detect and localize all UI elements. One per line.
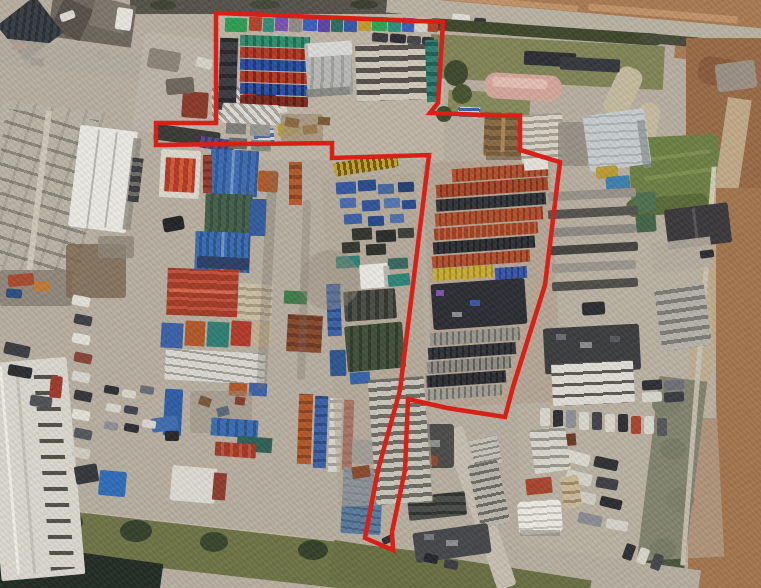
car-c4: [105, 403, 121, 413]
top-container-15: [428, 19, 438, 32]
car-r8: [631, 416, 641, 434]
red-machine: [8, 273, 35, 287]
car-e2: [642, 391, 662, 402]
verge-tree-4: [298, 540, 328, 560]
blue-ctr-4: [398, 182, 415, 193]
scrap-road-speck-1: [424, 534, 434, 540]
car-e1: [642, 379, 662, 390]
top-container-4: [275, 17, 288, 31]
red-column: [203, 155, 212, 193]
dark-box-2: [376, 229, 397, 242]
top-strip-tree-2: [250, 0, 280, 9]
mixed-row-orange: [184, 320, 205, 346]
blue-ctr-2: [358, 180, 377, 192]
pallet-racks-right: [355, 43, 433, 102]
aerial-photo-industrial-estate: [0, 0, 761, 588]
van-row-7: [71, 408, 91, 422]
dark-mass-purple: [436, 290, 444, 296]
colored-col-blue: [313, 396, 329, 468]
van-row-3: [71, 332, 91, 346]
van-row-4: [73, 351, 93, 365]
yard-stain: [300, 250, 360, 310]
top-container-12: [388, 18, 401, 32]
dark-box-1: [352, 227, 373, 240]
dark-suv: [582, 301, 606, 316]
van-row-8: [73, 427, 93, 441]
top-container-13: [402, 18, 414, 32]
barn-shadow: [486, 152, 522, 160]
blue-ctr-11: [390, 214, 404, 224]
white-roof-building: [170, 465, 218, 504]
red-wall-end: [212, 472, 227, 500]
dark-truck-l1: [3, 341, 31, 358]
dark-box-5: [366, 243, 387, 255]
car-c8: [141, 419, 156, 429]
van-row-6: [73, 389, 93, 403]
verge-tree-2: [120, 520, 152, 542]
teal-long: [387, 273, 410, 287]
white-rv: [115, 7, 134, 31]
green-gable-shed: [204, 193, 252, 235]
verge-tree-3: [200, 532, 228, 552]
wood-pile-2: [302, 124, 317, 135]
dark-box-4: [342, 242, 361, 254]
clutter-east-wh1: [98, 236, 134, 258]
car-c3: [139, 385, 154, 395]
mixed-row-blue: [160, 322, 183, 348]
white-cols-e: [529, 426, 571, 475]
red-rack-contents: [164, 157, 196, 193]
dark-mass-blue: [470, 300, 480, 306]
white-sacks-pile: [222, 102, 281, 125]
car-e3: [664, 379, 684, 390]
van-row-5: [71, 370, 91, 384]
top-container-7: [318, 18, 330, 32]
green-shed-2: [635, 213, 656, 232]
car-e4: [664, 391, 684, 402]
car-c7: [123, 423, 139, 433]
shrub-2: [452, 84, 472, 104]
car-r10: [657, 418, 667, 436]
maroon-stack: [181, 91, 209, 119]
shrub-3: [436, 106, 452, 122]
blue-ctr-8: [402, 200, 416, 210]
top-container-9: [344, 18, 357, 32]
dark-box-3: [398, 228, 415, 239]
blue-van: [6, 288, 23, 298]
red-box-c: [525, 477, 553, 496]
shrub-1: [444, 60, 468, 86]
gray-stack-2: [250, 123, 271, 136]
trailer-cab: [165, 431, 179, 441]
car-r4: [579, 412, 589, 430]
car-r3: [566, 410, 576, 428]
dark-van-t3: [407, 36, 422, 45]
car-c6: [103, 421, 118, 431]
blue-pallets: [458, 106, 480, 117]
car-r5: [592, 412, 602, 430]
car-c2: [121, 389, 136, 399]
pallet-3: [234, 396, 245, 405]
green-rows: [344, 322, 406, 373]
teal-column-right: [425, 40, 440, 102]
car-c5: [123, 405, 138, 415]
blue-ctr-1: [336, 181, 357, 194]
top-container-11: [372, 17, 387, 32]
car-r6: [605, 414, 615, 432]
wood-pile-3: [318, 116, 331, 125]
junk-pile-gray: [714, 59, 758, 92]
rust-box-strip: [351, 465, 370, 479]
blue-ctr-10: [368, 216, 385, 227]
top-container-8: [331, 18, 343, 32]
silver-columns: [368, 376, 433, 505]
colored-col-orange: [297, 394, 313, 464]
top-container-14: [415, 18, 427, 32]
red-row: [215, 442, 257, 459]
top-strip-tree-3: [350, 0, 378, 9]
white-trailer-row: [551, 360, 635, 406]
blue-ctr-3: [378, 184, 395, 195]
blue-extra-1: [330, 350, 347, 377]
car-r7: [618, 414, 628, 432]
scrap-speck-1: [556, 334, 566, 340]
orange-digger: [34, 281, 50, 291]
car-r9: [644, 416, 654, 434]
blue-container-bottom: [98, 470, 127, 497]
topleft-road: [0, 37, 161, 81]
blue-ctr-5: [340, 198, 357, 209]
teal-box-2: [388, 257, 409, 269]
gray-columns-ne: [654, 283, 712, 351]
canopy-shadow: [520, 530, 560, 536]
scrap-road-speck-2: [446, 540, 458, 546]
top-container-2: [249, 17, 262, 31]
top-container-10: [358, 17, 371, 31]
eq-row-1: [548, 188, 636, 202]
top-strip-tree-1: [150, 0, 176, 10]
van-row-2: [73, 313, 93, 327]
gray-stack-4: [251, 139, 272, 151]
eq-row-2: [548, 206, 638, 220]
top-container-3: [263, 18, 274, 32]
dark-van-t2: [390, 33, 407, 43]
house-car: [700, 249, 715, 259]
blue-ctr-7: [384, 198, 401, 209]
dark-mass-gray: [452, 312, 462, 317]
mixed-row-red: [230, 320, 251, 346]
dark-truck-column: [218, 38, 239, 111]
top-container-6: [303, 17, 317, 31]
pile-b: [165, 77, 194, 95]
eq-row-3: [550, 224, 636, 237]
car-r1: [540, 408, 550, 426]
car-c1: [103, 385, 119, 395]
canopy-bit: [524, 157, 549, 171]
red-truck-left: [49, 376, 63, 399]
scrap-speck-2: [580, 342, 592, 348]
top-container-5: [289, 18, 302, 32]
orange-column: [289, 162, 302, 205]
dark-van-t1: [372, 32, 389, 42]
gray-stack-3: [229, 138, 248, 150]
crane-truck: [74, 463, 100, 485]
blue-ctr-9: [344, 214, 362, 225]
mixed-row-teal: [206, 321, 229, 347]
scrap-speck-3: [610, 336, 620, 342]
black-van: [162, 215, 185, 232]
blue-shed-row: [210, 417, 258, 438]
blue-ctr-6: [362, 200, 381, 212]
silver-stack-row: [164, 348, 265, 384]
top-container-1: [225, 18, 247, 33]
